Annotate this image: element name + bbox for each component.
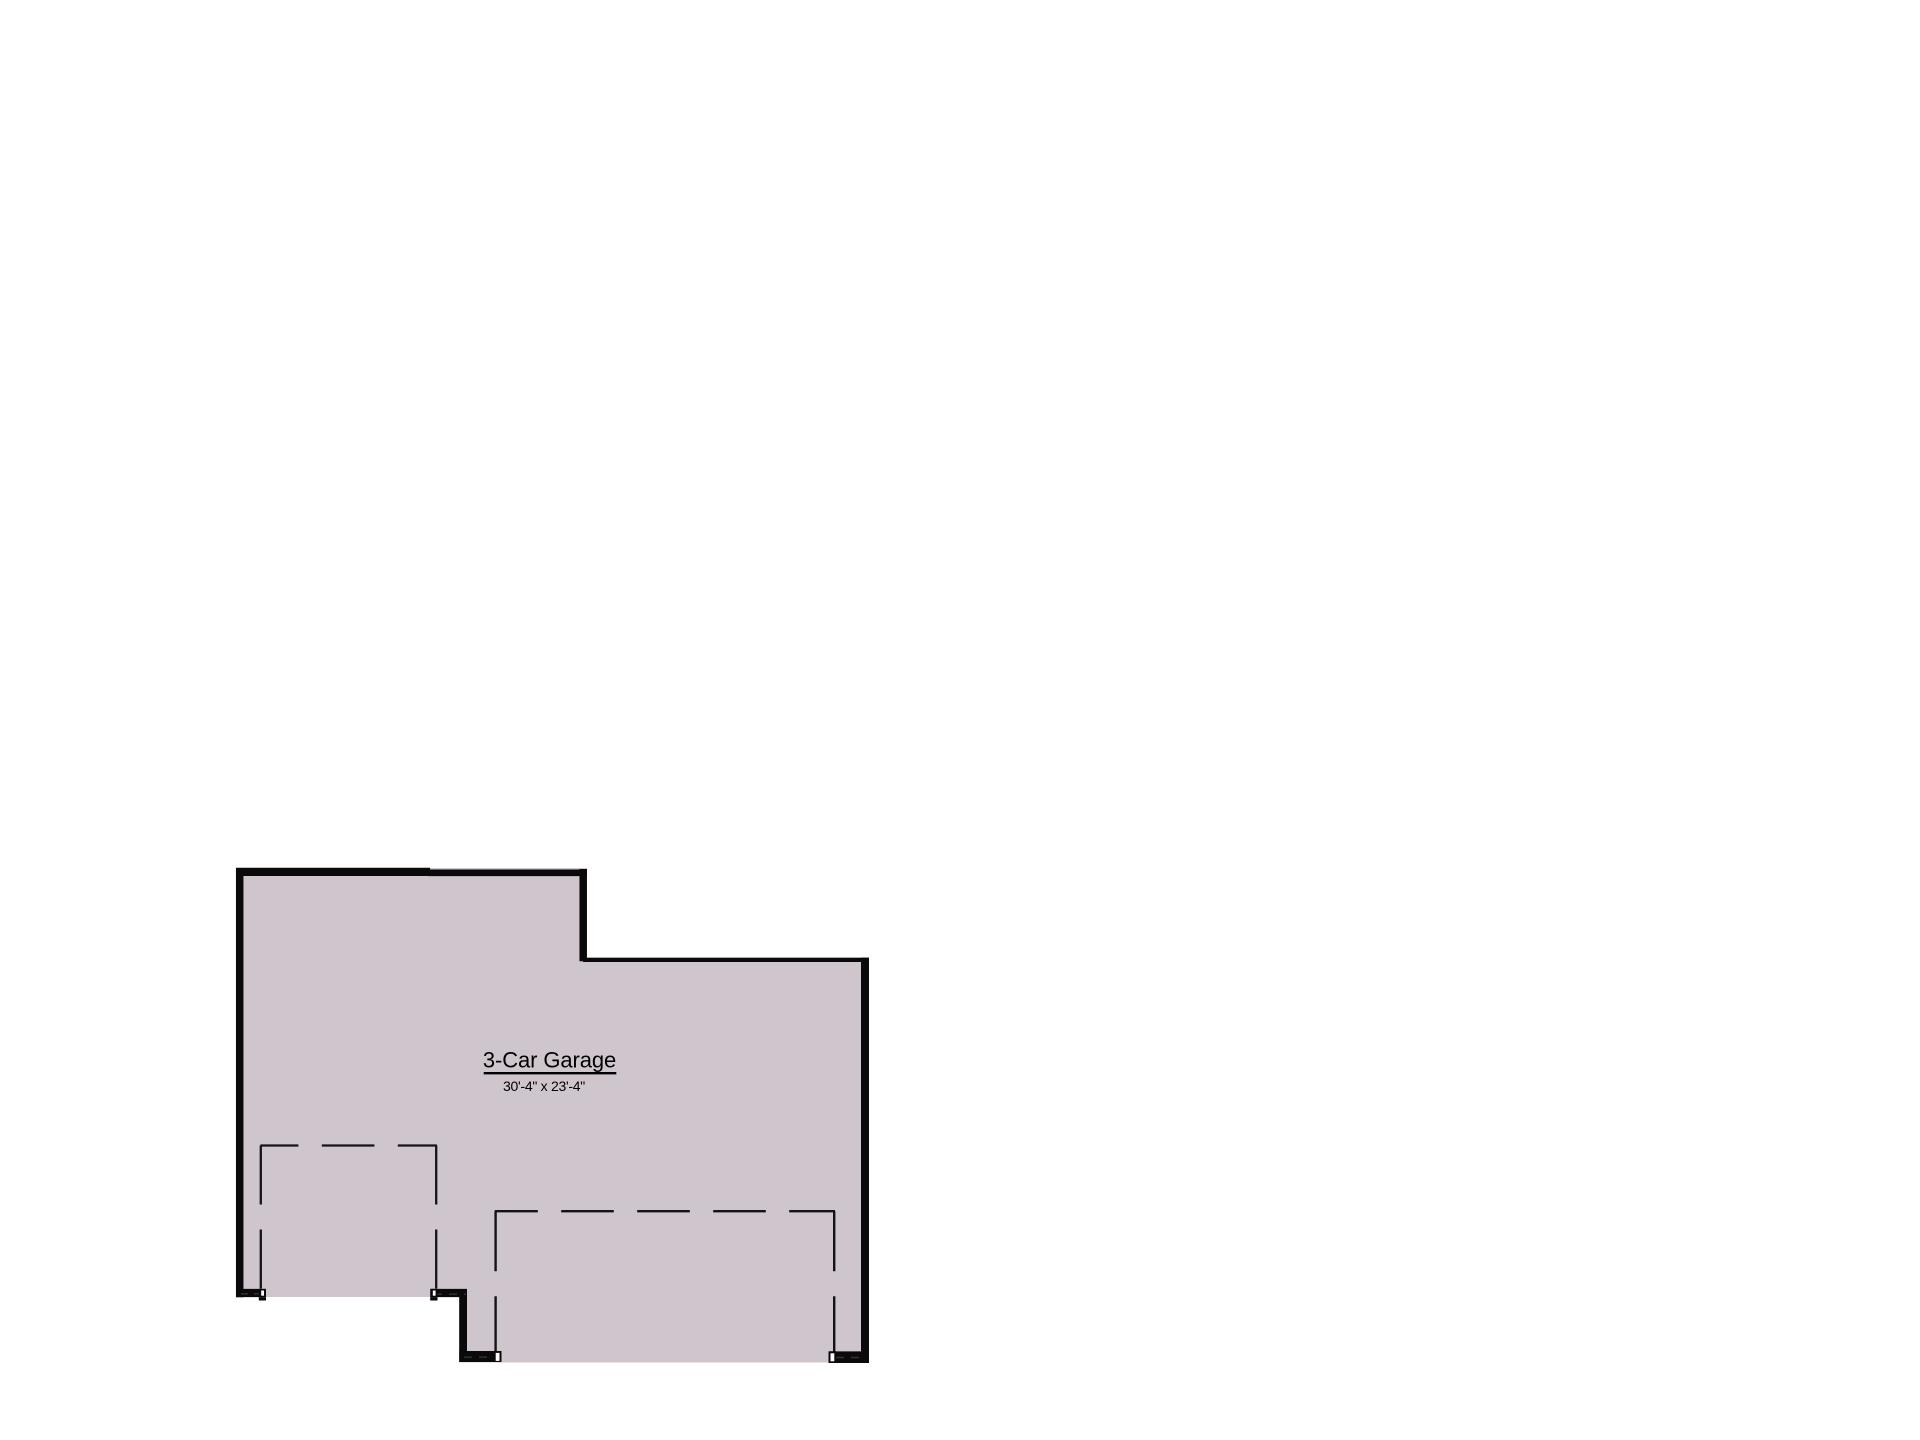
- svg-text:3-Car Garage: 3-Car Garage: [483, 1047, 616, 1072]
- svg-text:30'-4" x 23'-4": 30'-4" x 23'-4": [503, 1078, 585, 1094]
